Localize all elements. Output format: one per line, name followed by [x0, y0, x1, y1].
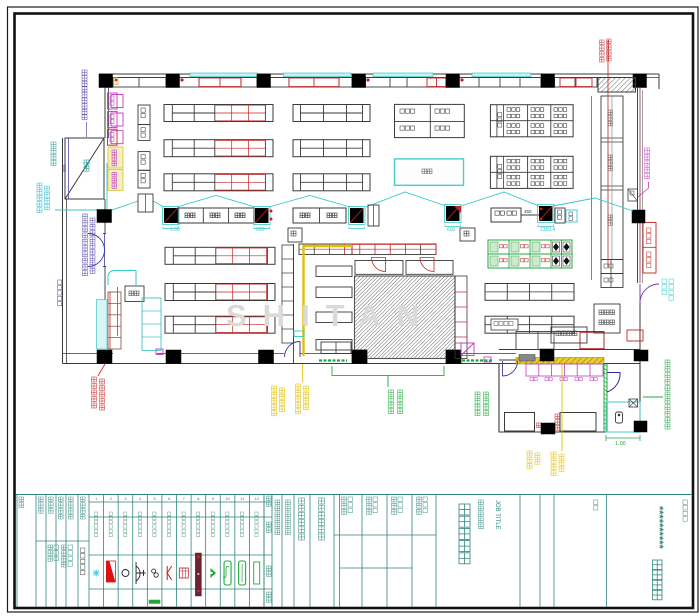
svg-text:450: 450 — [524, 209, 532, 214]
svg-text:1.00: 1.00 — [615, 441, 626, 447]
svg-text:SHITAN: SHITAN — [226, 298, 435, 333]
svg-text:11: 11 — [240, 496, 245, 501]
svg-text:1: 1 — [95, 496, 98, 501]
svg-text:JOB TITLE: JOB TITLE — [494, 500, 500, 530]
svg-text:2: 2 — [110, 496, 113, 501]
svg-text:3: 3 — [124, 496, 127, 501]
svg-text:6: 6 — [168, 496, 171, 501]
svg-text:9: 9 — [212, 496, 215, 501]
svg-text:600: 600 — [447, 227, 456, 233]
svg-text:1350.4: 1350.4 — [540, 227, 556, 233]
svg-text:1.50: 1.50 — [170, 227, 180, 233]
svg-text:**********: ********** — [653, 506, 665, 550]
svg-text:4: 4 — [139, 496, 142, 501]
svg-text:10: 10 — [225, 496, 230, 501]
svg-text:8: 8 — [197, 496, 200, 501]
svg-text:12: 12 — [254, 496, 259, 501]
svg-text:600: 600 — [256, 227, 265, 233]
svg-text:5: 5 — [154, 496, 157, 501]
svg-text:300: 300 — [62, 164, 67, 172]
svg-text:7: 7 — [183, 496, 186, 501]
